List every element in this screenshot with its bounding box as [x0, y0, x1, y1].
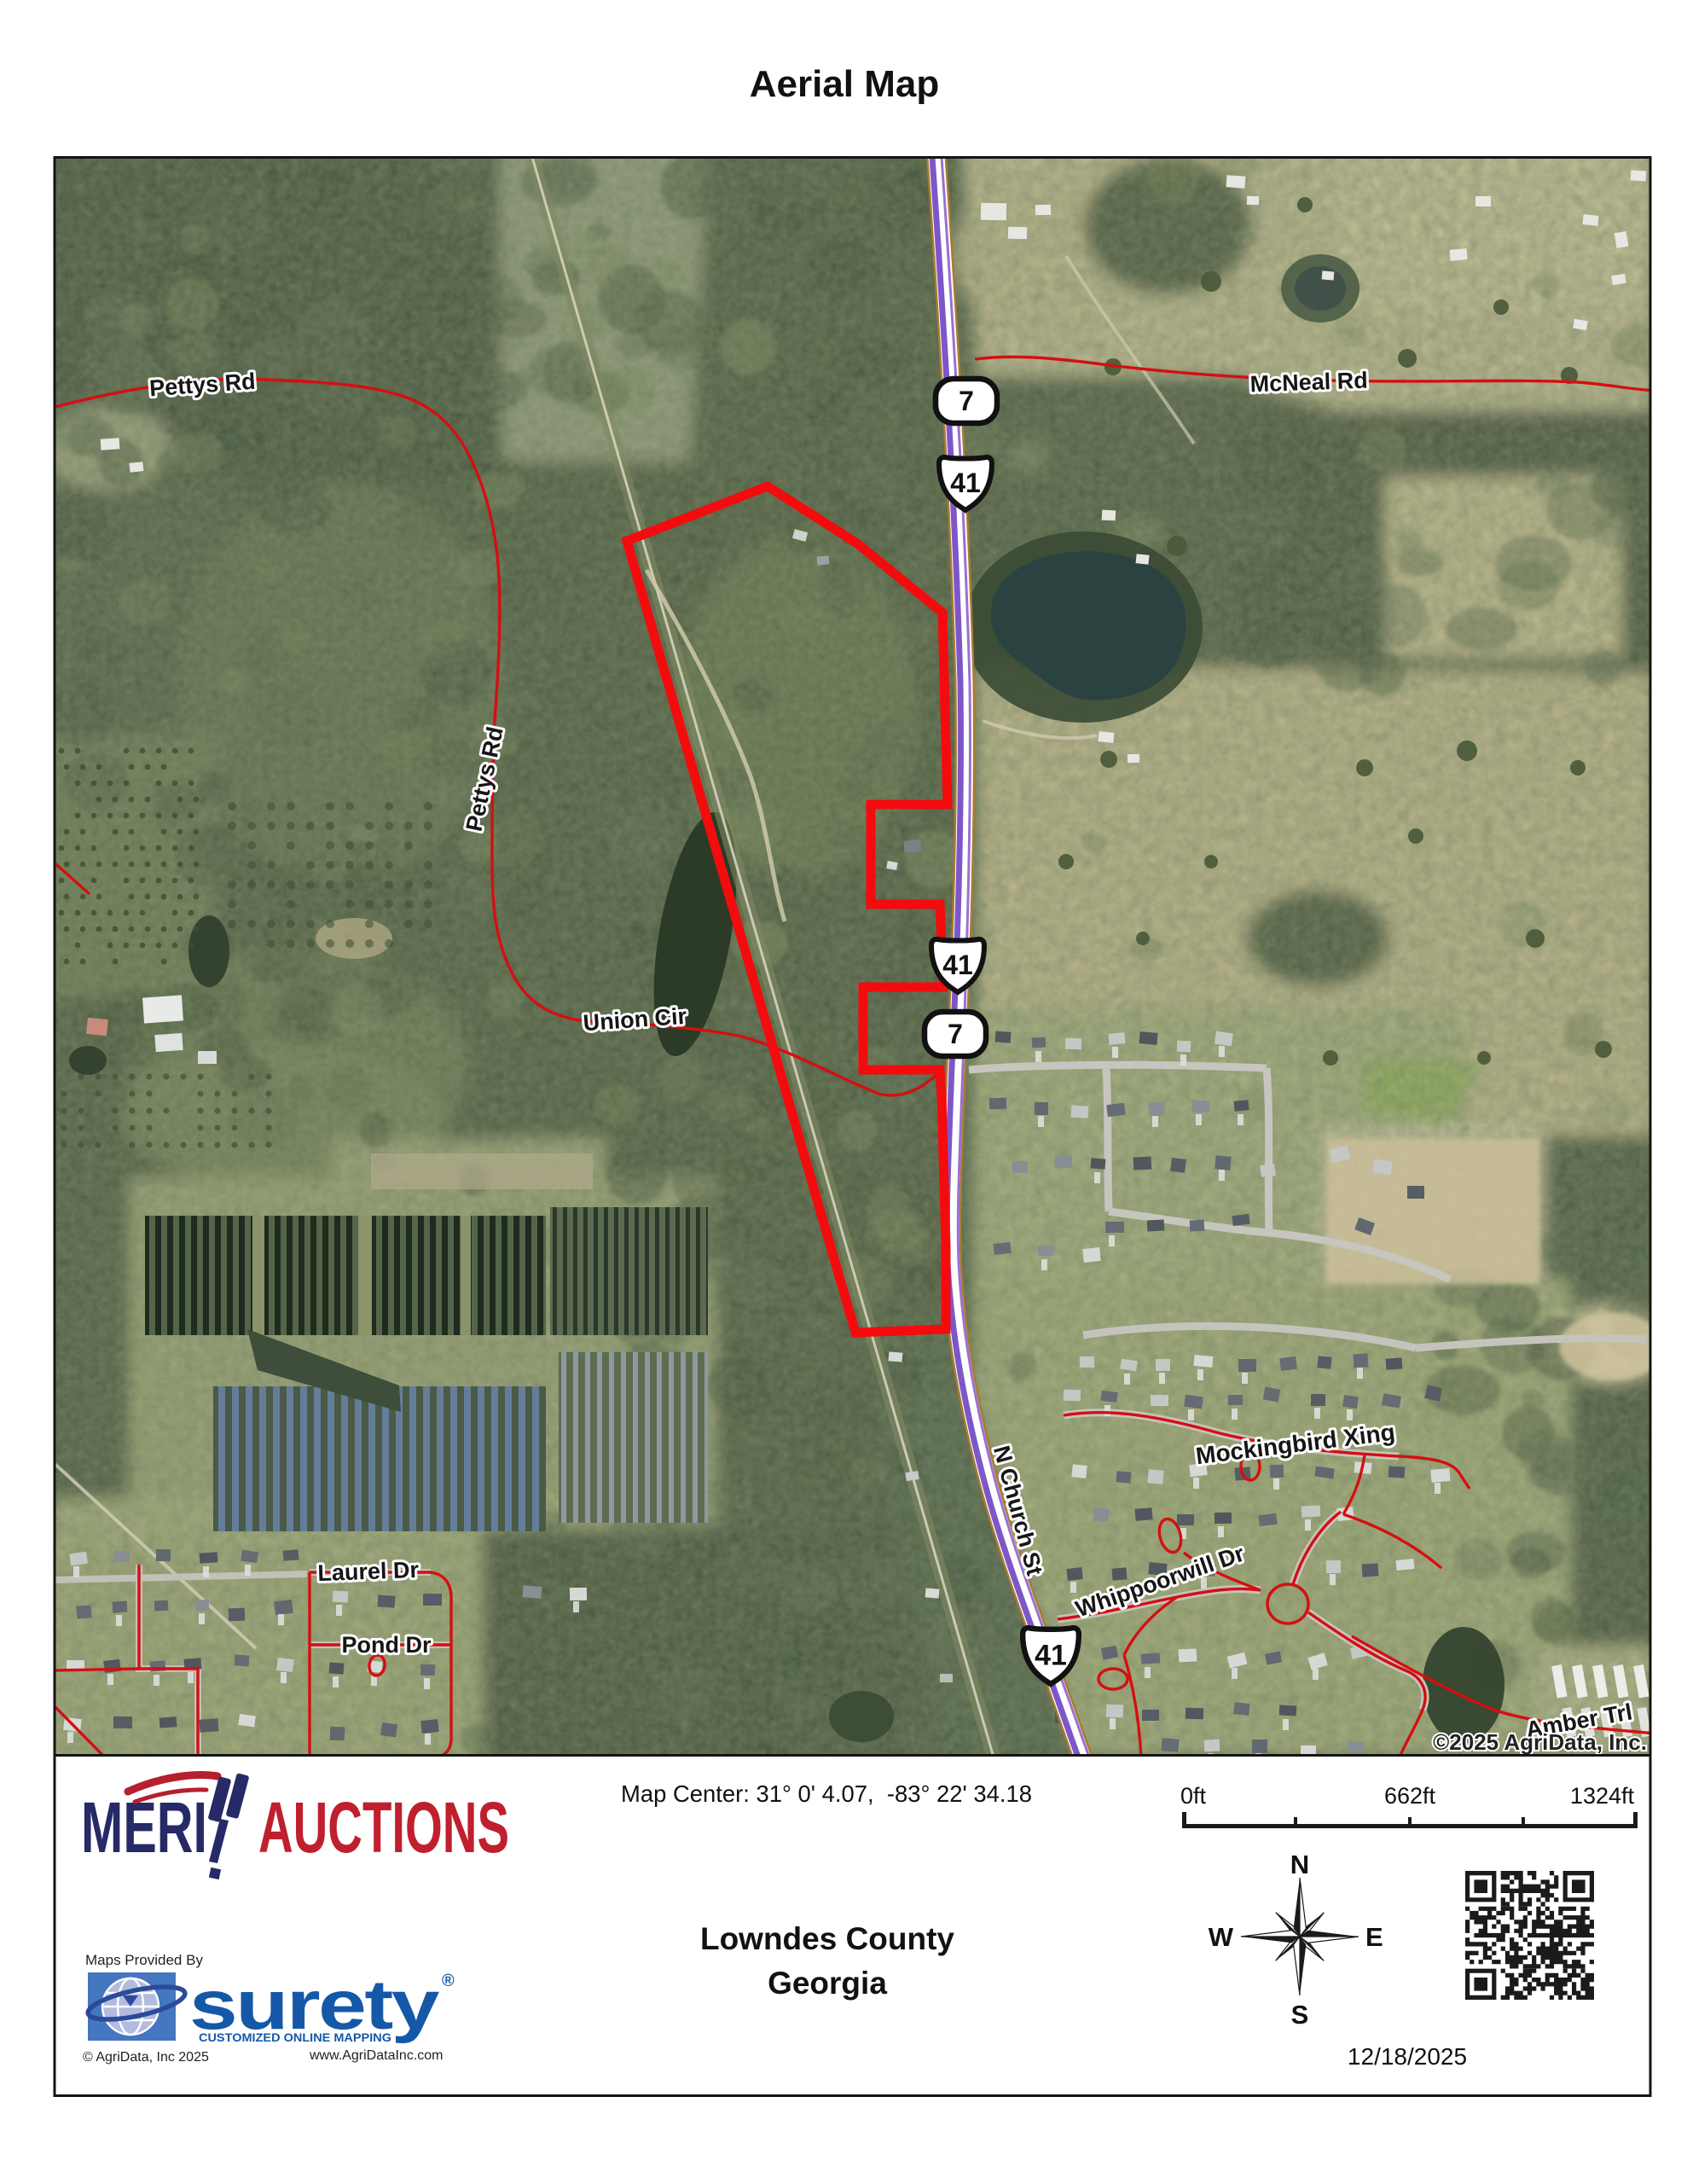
svg-text:McNeal Rd: McNeal Rd [1249, 368, 1368, 398]
svg-text:Maps Provided By: Maps Provided By [85, 1952, 203, 1968]
svg-text:0ft: 0ft [1180, 1783, 1207, 1809]
svg-text:E: E [1365, 1922, 1383, 1952]
svg-text:Map Center: 31° 0' 4.07, -83°: Map Center: 31° 0' 4.07, -83° 22' 34.18 [621, 1780, 1032, 1807]
svg-text:Lowndes County: Lowndes County [700, 1921, 954, 1956]
svg-text:Georgia: Georgia [768, 1966, 887, 2001]
svg-text:7: 7 [959, 386, 974, 416]
svg-text:41: 41 [1035, 1640, 1067, 1672]
svg-text:41: 41 [942, 950, 973, 980]
svg-text:Laurel Dr: Laurel Dr [317, 1557, 420, 1586]
svg-text:N: N [1290, 1850, 1309, 1879]
svg-text:CUSTOMIZED ONLINE MAPPING: CUSTOMIZED ONLINE MAPPING [199, 2031, 391, 2044]
svg-text:S: S [1291, 2000, 1309, 2030]
svg-text:12/18/2025: 12/18/2025 [1348, 2043, 1467, 2070]
svg-text:www.AgriDataInc.com: www.AgriDataInc.com [309, 2048, 443, 2063]
svg-text:©2025 AgriData, Inc.: ©2025 AgriData, Inc. [1433, 1729, 1647, 1755]
svg-text:Pond Dr: Pond Dr [342, 1632, 432, 1658]
svg-text:Aerial Map: Aerial Map [750, 63, 940, 105]
svg-text:1324ft: 1324ft [1570, 1783, 1635, 1809]
svg-text:662ft: 662ft [1384, 1783, 1436, 1809]
svg-text:7: 7 [948, 1019, 963, 1049]
svg-text:© AgriData, Inc 2025: © AgriData, Inc 2025 [83, 2050, 209, 2065]
svg-text:41: 41 [950, 468, 981, 498]
svg-text:®: ® [442, 1972, 455, 1990]
svg-text:AUCTIONS: AUCTIONS [258, 1787, 509, 1867]
svg-text:W: W [1209, 1922, 1234, 1952]
